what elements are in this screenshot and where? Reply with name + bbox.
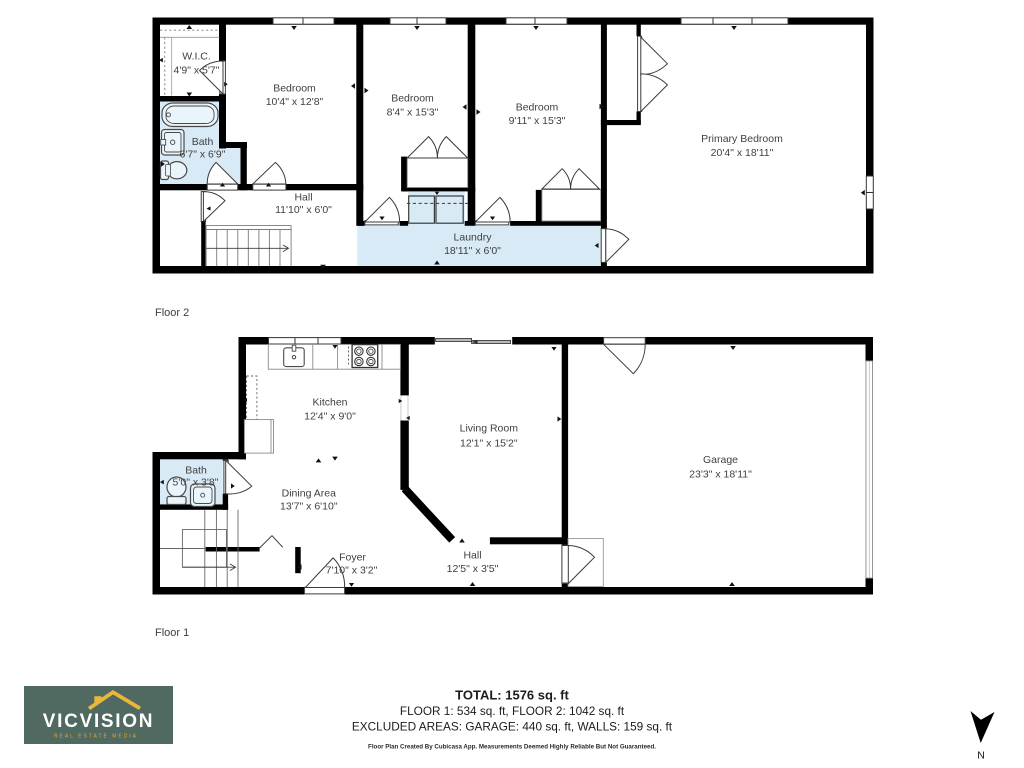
svg-text:N: N (977, 750, 985, 762)
svg-text:Hall: Hall (463, 550, 481, 562)
svg-text:20'4" x 18'11": 20'4" x 18'11" (711, 147, 774, 159)
svg-text:13'7" x 6'10": 13'7" x 6'10" (280, 500, 338, 512)
svg-text:Bedroom: Bedroom (516, 102, 559, 114)
svg-text:Garage: Garage (703, 454, 738, 466)
svg-text:12'1" x 15'2": 12'1" x 15'2" (460, 437, 518, 449)
svg-text:Floor 2: Floor 2 (155, 307, 189, 319)
svg-text:Bath: Bath (185, 465, 207, 477)
svg-text:Hall: Hall (294, 192, 312, 204)
svg-text:Kitchen: Kitchen (312, 397, 347, 409)
svg-text:10'4" x 12'8": 10'4" x 12'8" (266, 96, 324, 108)
svg-text:EXCLUDED AREAS: GARAGE: 440 sq: EXCLUDED AREAS: GARAGE: 440 sq. ft, WALL… (352, 719, 673, 733)
svg-text:VICVISION: VICVISION (43, 711, 154, 732)
svg-text:Living Room: Living Room (460, 422, 519, 434)
svg-text:7'10" x 3'2": 7'10" x 3'2" (326, 565, 378, 577)
svg-text:REAL ESTATE MEDIA: REAL ESTATE MEDIA (54, 734, 138, 740)
svg-text:6'7" x 6'9": 6'7" x 6'9" (180, 149, 226, 161)
svg-text:Bedroom: Bedroom (273, 83, 316, 95)
svg-text:Primary Bedroom: Primary Bedroom (701, 133, 783, 145)
svg-text:FLOOR 1: 534 sq. ft, FLOOR 2:: FLOOR 1: 534 sq. ft, FLOOR 2: 1042 sq. f… (400, 704, 625, 718)
svg-text:8'4" x 15'3": 8'4" x 15'3" (387, 107, 439, 119)
svg-text:23'3" x 18'11": 23'3" x 18'11" (689, 469, 752, 481)
svg-text:9'11" x 15'3": 9'11" x 15'3" (509, 115, 566, 127)
svg-text:TOTAL: 1576 sq. ft: TOTAL: 1576 sq. ft (455, 688, 569, 703)
svg-text:12'5" x 3'5": 12'5" x 3'5" (447, 563, 499, 575)
svg-text:4'9" x 5'7": 4'9" x 5'7" (174, 65, 220, 77)
svg-text:Dining Area: Dining Area (282, 488, 336, 500)
svg-text:11'10" x 6'0": 11'10" x 6'0" (275, 204, 332, 216)
svg-text:Laundry: Laundry (454, 232, 493, 244)
svg-text:18'11" x 6'0": 18'11" x 6'0" (444, 245, 501, 257)
svg-text:W.I.C.: W.I.C. (182, 51, 211, 63)
svg-text:12'4" x 9'0": 12'4" x 9'0" (304, 411, 356, 423)
svg-text:Floor 1: Floor 1 (155, 627, 189, 639)
svg-text:Bedroom: Bedroom (391, 93, 434, 105)
svg-text:Bath: Bath (192, 136, 214, 148)
svg-text:5'0" x 3'8": 5'0" x 3'8" (173, 477, 219, 489)
svg-text:Foyer: Foyer (339, 552, 366, 564)
svg-text:Floor Plan Created By Cubicasa: Floor Plan Created By Cubicasa App. Meas… (368, 744, 656, 751)
